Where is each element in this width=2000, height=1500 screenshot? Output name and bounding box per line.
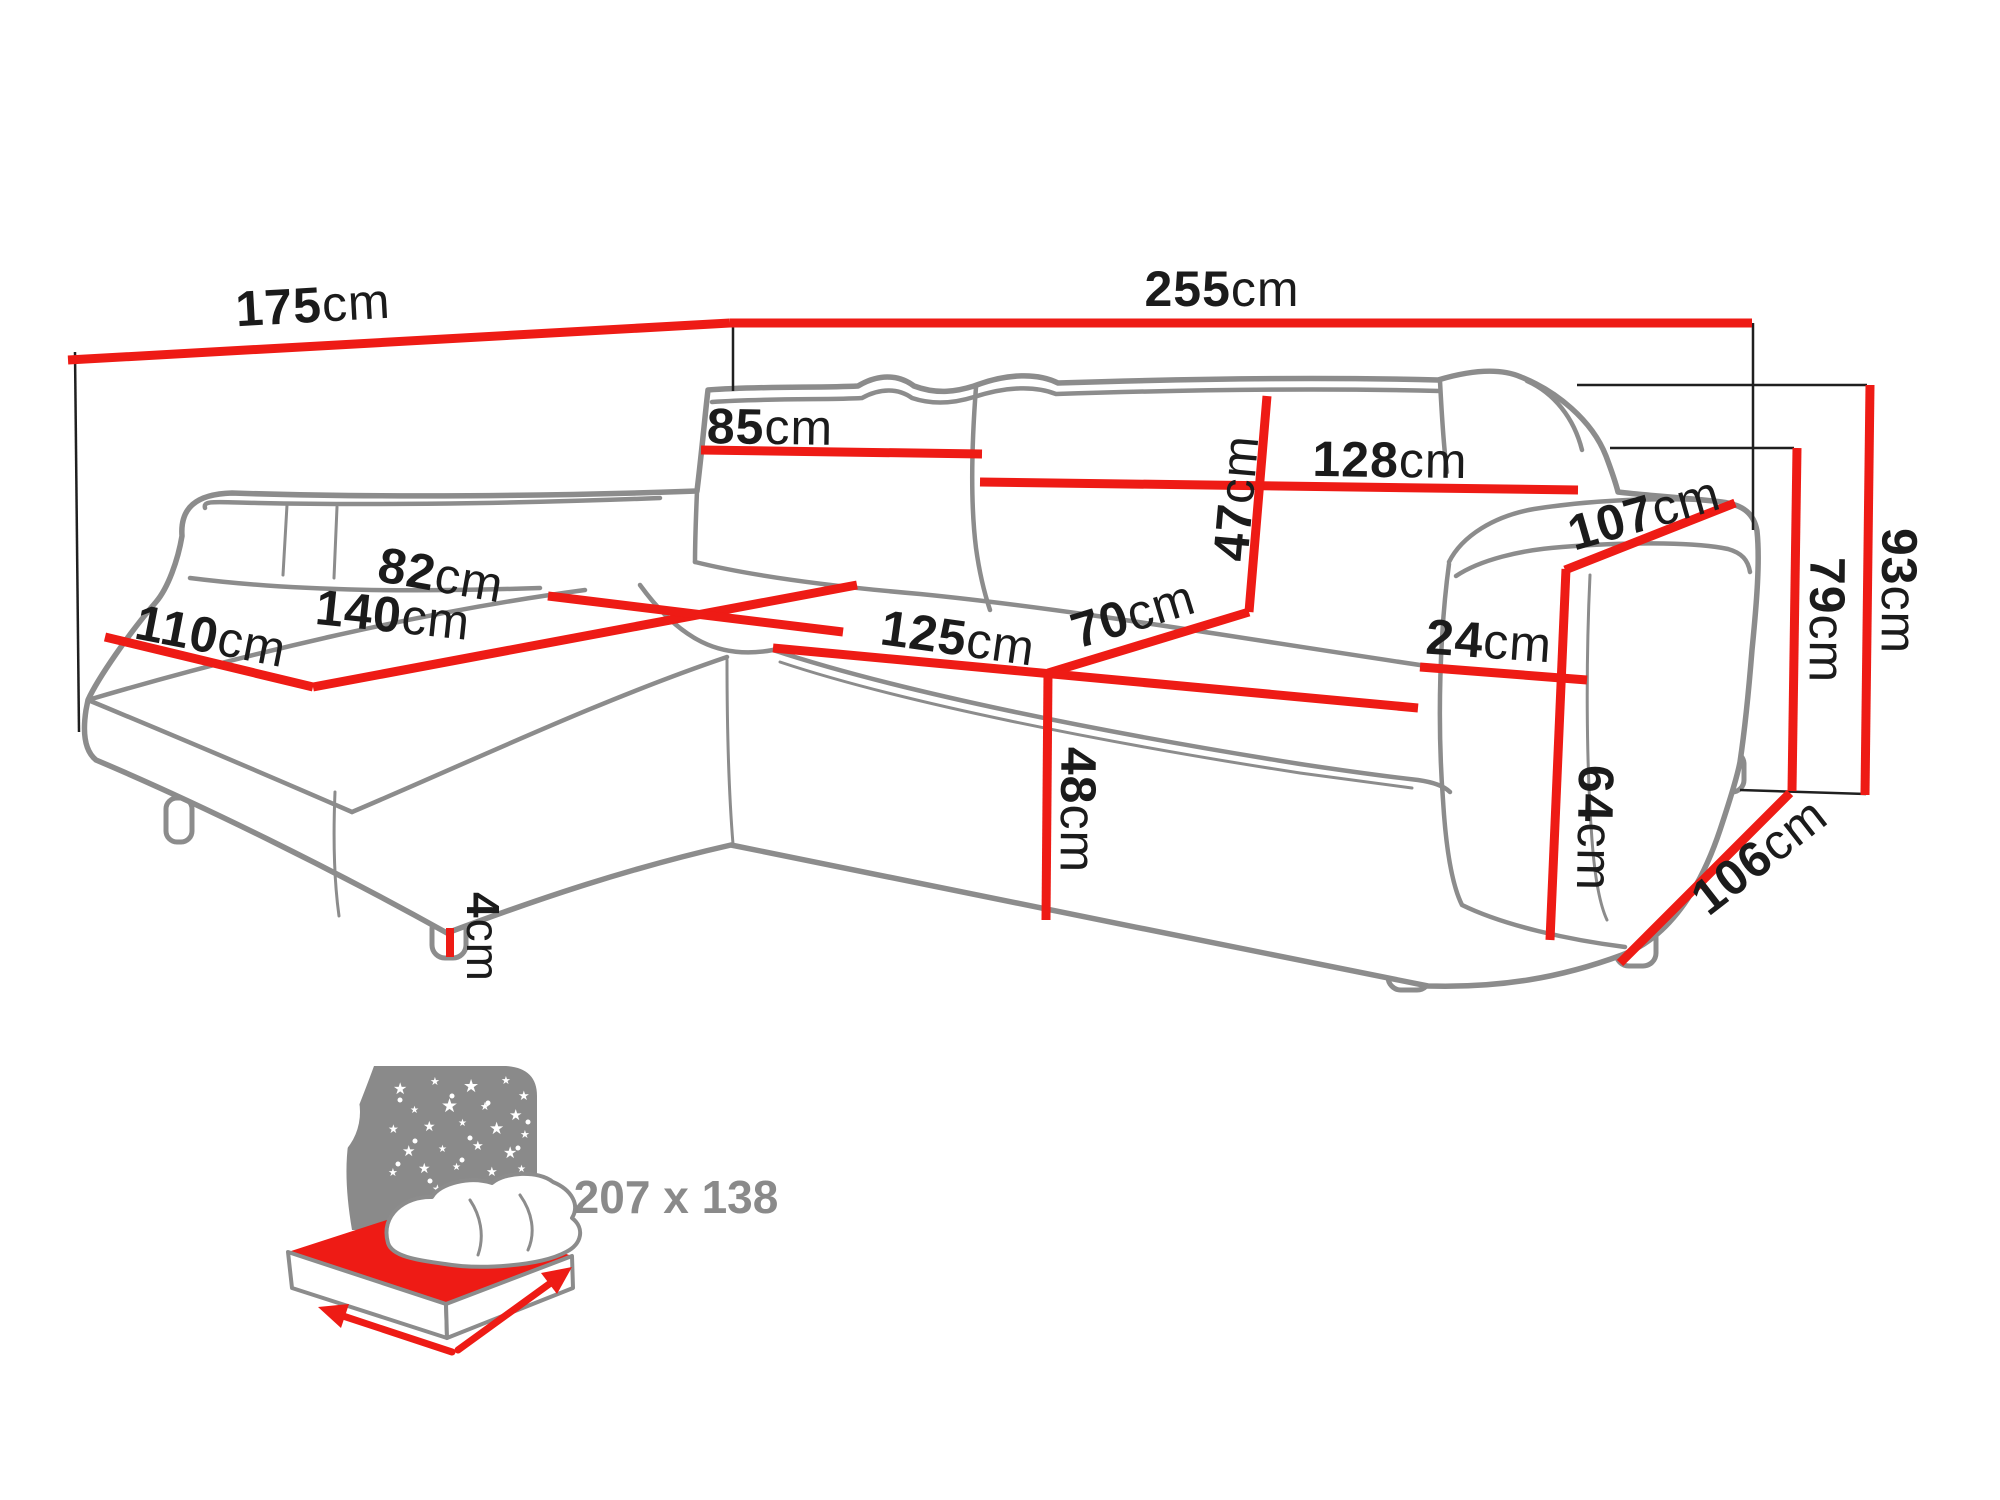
svg-text:★: ★ [441, 1095, 458, 1117]
svg-text:★: ★ [503, 1143, 517, 1162]
backrest-left-edge [695, 491, 697, 562]
svg-text:★: ★ [410, 1105, 419, 1116]
width-arrow-head-icon [318, 1304, 349, 1328]
dim-label-4: 4cm [460, 892, 506, 982]
svg-text:★: ★ [486, 1165, 498, 1180]
sofa-bed-icon: ★ ★ ★ ★ ★ ★ ★ ★ ★ ★ ★ ★ ★ ★ ★ ★ ★ ★ ★ ★ [244, 1054, 580, 1352]
dim-value: 82 [374, 536, 440, 601]
dim-value: 255 [1144, 261, 1230, 317]
svg-text:★: ★ [520, 1128, 530, 1141]
svg-text:★: ★ [489, 1119, 504, 1139]
svg-text:★: ★ [458, 1118, 467, 1129]
svg-text:★: ★ [430, 1075, 440, 1088]
dim-unit: cm [1566, 822, 1623, 892]
dimension-line-175 [68, 323, 730, 360]
dim-unit: cm [1398, 432, 1467, 489]
dim-unit: cm [431, 546, 508, 613]
dim-value: 125 [877, 599, 970, 666]
dim-value: 93 [1871, 528, 1928, 586]
dim-value: 85 [706, 398, 764, 455]
dim-unit: cm [1231, 261, 1300, 317]
dim-value: 24 [1424, 609, 1485, 669]
dim-unit: cm [1049, 804, 1106, 873]
dim-value: 48 [1050, 747, 1107, 805]
svg-text:★: ★ [393, 1079, 407, 1098]
svg-text:★: ★ [438, 1144, 447, 1155]
dimension-line-79 [1792, 448, 1797, 791]
dim-value: 128 [1312, 431, 1399, 488]
dim-unit: cm [1208, 433, 1270, 506]
dim-unit: cm [320, 273, 392, 333]
svg-text:★: ★ [501, 1074, 511, 1087]
dim-value: 79 [1799, 557, 1856, 615]
svg-text:★: ★ [388, 1166, 398, 1179]
dim-label-85: 85cm [707, 401, 834, 453]
sofa-dimensions-diagram: ★ ★ ★ ★ ★ ★ ★ ★ ★ ★ ★ ★ ★ ★ ★ ★ ★ ★ ★ ★ [0, 0, 2000, 1500]
sleeping-area-size-label: 207 x 138 [574, 1170, 779, 1224]
dim-unit: cm [1482, 613, 1554, 674]
extension-line-left [75, 352, 79, 732]
dim-label-64: 64cm [1569, 764, 1621, 891]
dimension-line-93 [1865, 385, 1870, 795]
dim-label-128: 128cm [1312, 434, 1468, 486]
moon-icon [244, 1054, 360, 1170]
svg-text:★: ★ [423, 1119, 436, 1135]
dim-label-175: 175cm [234, 276, 392, 335]
dim-label-79: 79cm [1801, 557, 1852, 684]
svg-text:★: ★ [509, 1106, 522, 1124]
dim-label-47: 47cm [1206, 433, 1267, 563]
dim-label-255: 255cm [1144, 264, 1299, 314]
dim-unit: cm [457, 919, 509, 982]
svg-text:★: ★ [463, 1076, 479, 1097]
svg-text:★: ★ [518, 1089, 530, 1104]
sofa-leg-icon [166, 798, 192, 842]
svg-text:★: ★ [472, 1139, 484, 1154]
dimension-line-48 [1046, 673, 1048, 920]
dim-label-48: 48cm [1052, 747, 1103, 874]
dim-unit: cm [963, 612, 1039, 677]
dim-value: 4 [457, 892, 509, 919]
diagram-artwork: ★ ★ ★ ★ ★ ★ ★ ★ ★ ★ ★ ★ ★ ★ ★ ★ ★ ★ ★ ★ [0, 0, 2000, 1500]
svg-text:★: ★ [418, 1161, 431, 1177]
dim-unit: cm [1870, 585, 1927, 654]
dim-value: 175 [234, 277, 323, 338]
dim-value: 47 [1203, 501, 1264, 563]
dim-unit: cm [1798, 614, 1855, 683]
dim-value: 64 [1567, 764, 1624, 823]
dim-label-93: 93cm [1873, 528, 1924, 655]
svg-text:★: ★ [402, 1142, 415, 1160]
dim-unit: cm [764, 399, 833, 456]
svg-text:★: ★ [388, 1122, 399, 1136]
dim-label-24: 24cm [1424, 612, 1553, 671]
svg-text:★: ★ [452, 1162, 461, 1173]
